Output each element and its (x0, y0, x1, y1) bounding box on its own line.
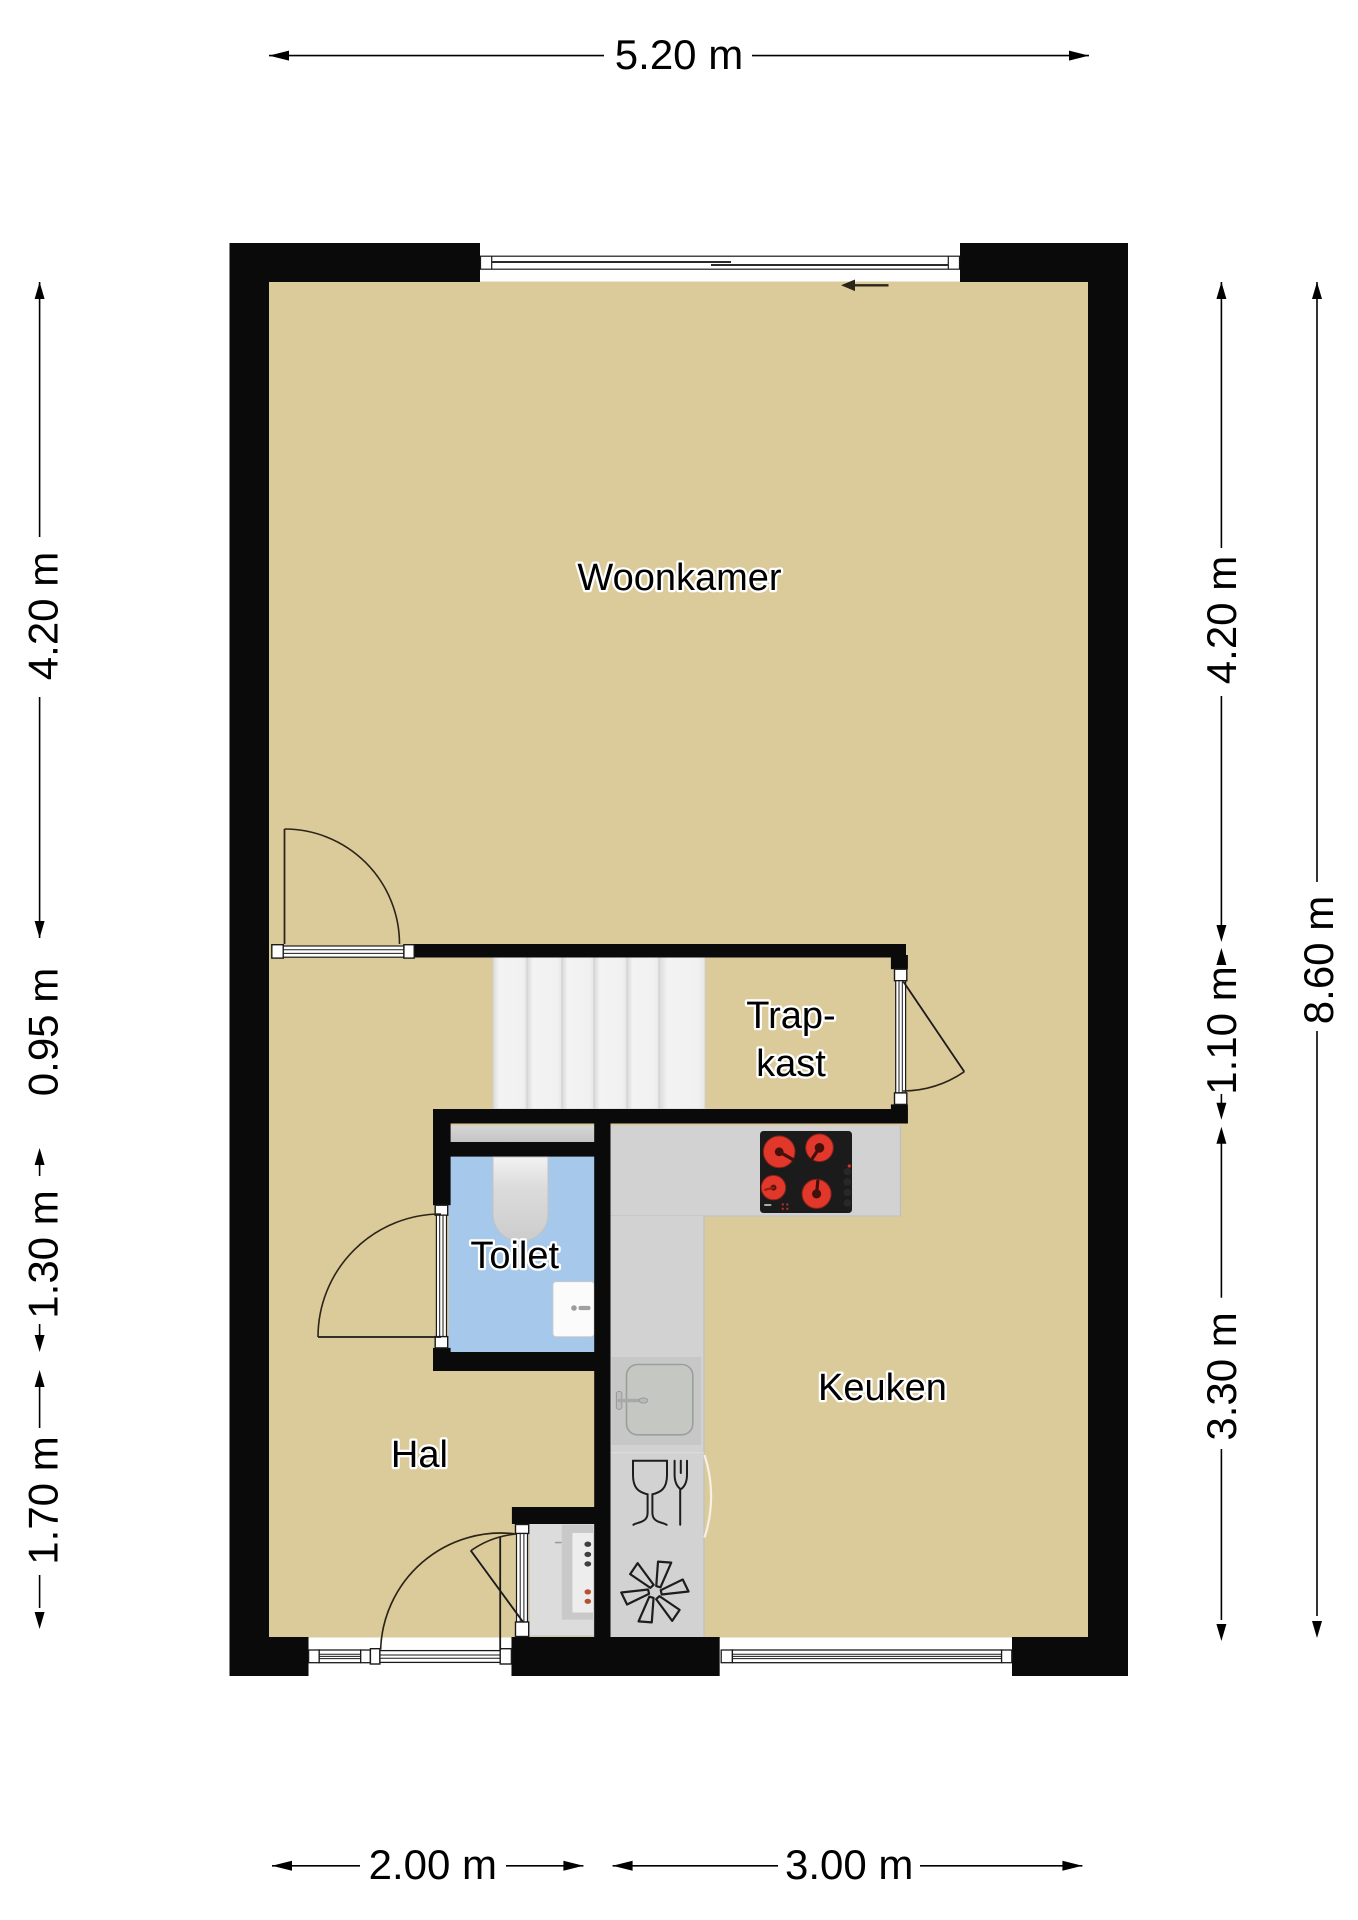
svg-text:4.20 m: 4.20 m (19, 552, 66, 680)
svg-text:kast: kast (756, 1043, 826, 1085)
svg-text:4.20 m: 4.20 m (1198, 556, 1245, 684)
svg-text:1.30 m: 1.30 m (19, 1190, 66, 1318)
svg-text:0.95 m: 0.95 m (19, 968, 66, 1096)
svg-text:Woonkamer: Woonkamer (577, 557, 782, 599)
svg-text:Hal: Hal (391, 1434, 448, 1476)
svg-text:Toilet: Toilet (470, 1235, 559, 1277)
svg-text:8.60 m: 8.60 m (1295, 896, 1342, 1024)
svg-text:1.70 m: 1.70 m (19, 1436, 66, 1564)
svg-text:5.20 m: 5.20 m (615, 31, 743, 78)
svg-text:2.00 m: 2.00 m (369, 1841, 497, 1888)
svg-text:3.30 m: 3.30 m (1198, 1312, 1245, 1440)
svg-text:Keuken: Keuken (818, 1367, 947, 1409)
svg-text:3.00 m: 3.00 m (785, 1841, 913, 1888)
svg-text:Trap-: Trap- (746, 995, 835, 1037)
svg-text:1.10 m: 1.10 m (1198, 966, 1245, 1094)
